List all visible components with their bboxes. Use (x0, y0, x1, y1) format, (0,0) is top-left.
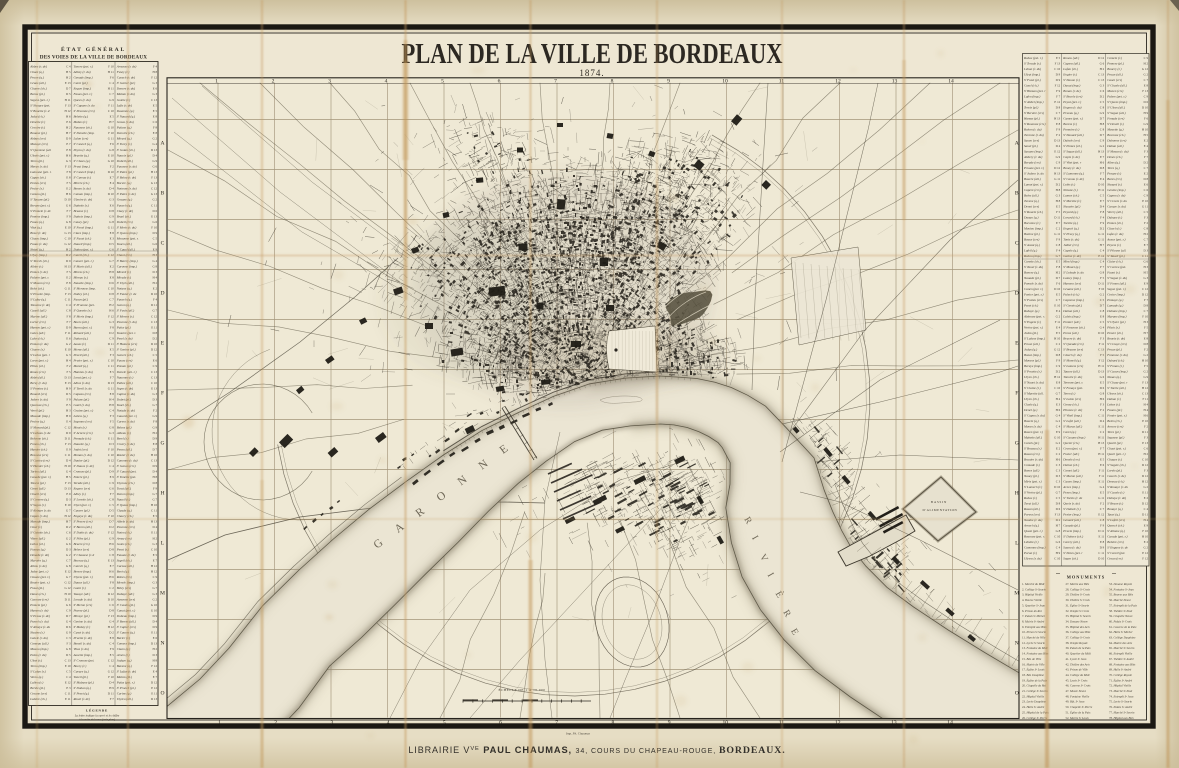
svg-text:Albos (r. du): Albos (r. du) (73, 381, 90, 385)
svg-text:E 11: E 11 (1099, 425, 1105, 429)
svg-text:Sᵗ Meress (r.): Sᵗ Meress (r.) (117, 314, 134, 318)
svg-text:Moness (pl.): Moness (pl.) (1023, 359, 1040, 363)
svg-text:50. Chapelle Sᵉ Pierre: 50. Chapelle Sᵉ Pierre (1066, 705, 1093, 709)
svg-text:E 6: E 6 (66, 337, 71, 341)
svg-text:Canere (pet. r.): Canere (pet. r.) (74, 259, 94, 263)
svg-text:G 11: G 11 (108, 386, 114, 390)
svg-text:Beraye (imp.): Beraye (imp.) (1024, 364, 1042, 368)
svg-text:Mouade (imp.): Mouade (imp.) (29, 414, 50, 418)
svg-text:Sᵗ Fauier (r. de: Sᵗ Fauier (r. de (117, 292, 137, 296)
svg-text:G 9: G 9 (152, 425, 157, 429)
svg-text:E 9: E 9 (1144, 524, 1149, 528)
svg-text:H 10: H 10 (1142, 128, 1149, 132)
svg-text:D 4: D 4 (152, 525, 157, 529)
svg-text:H 11: H 11 (1098, 188, 1104, 192)
svg-text:Sᵗ Pesere (crs): Sᵗ Pesere (crs) (74, 520, 93, 524)
svg-text:F 2: F 2 (67, 364, 71, 368)
svg-text:F 5: F 5 (67, 370, 71, 374)
svg-text:71. Église Sᵉ André: 71. Église Sᵉ André (1109, 677, 1133, 682)
svg-text:D 6: D 6 (1143, 100, 1148, 104)
svg-text:C 6: C 6 (153, 120, 158, 124)
svg-text:E 10: E 10 (65, 503, 71, 507)
svg-text:H 10: H 10 (151, 503, 158, 507)
svg-text:G 9: G 9 (109, 536, 114, 540)
svg-text:Sᵗ Terech (ch.): Sᵗ Terech (ch.) (30, 259, 49, 263)
svg-text:D 4: D 4 (152, 470, 157, 474)
svg-text:D 9: D 9 (1100, 546, 1105, 550)
svg-text:E 11: E 11 (151, 692, 157, 696)
svg-text:Dabele (crs): Dabele (crs) (1062, 139, 1080, 143)
svg-text:E 9: E 9 (66, 448, 71, 452)
svg-text:O: O (1015, 691, 1019, 697)
svg-text:Sᵗ Terade (r.): Sᵗ Terade (r.) (1024, 62, 1041, 66)
svg-text:G 2: G 2 (66, 536, 71, 540)
svg-text:E 6: E 6 (66, 120, 71, 124)
svg-text:A: A (160, 141, 164, 147)
svg-text:Sᵗ Lorette (ch.): Sᵗ Lorette (ch.) (74, 497, 93, 501)
svg-text:Comele (r.): Comele (r.) (1107, 56, 1122, 60)
svg-text:Sᵗ Pales (pl.): Sᵗ Pales (pl.) (117, 170, 134, 174)
svg-text:G 2: G 2 (1100, 144, 1105, 148)
svg-text:C 8: C 8 (1100, 309, 1105, 313)
svg-text:Baress (r.): Baress (r.) (1063, 122, 1077, 126)
svg-text:H 8: H 8 (1100, 122, 1105, 126)
svg-text:Fonier (pet. r.): Fonier (pet. r.) (1023, 293, 1043, 297)
svg-text:G 6: G 6 (1056, 540, 1061, 544)
svg-text:F 6: F 6 (110, 142, 114, 146)
svg-text:Tonis (r. du): Tonis (r. du) (1063, 238, 1079, 242)
svg-text:F 3: F 3 (1144, 216, 1148, 220)
svg-text:Monaye (crs): Monaye (crs) (29, 142, 48, 146)
svg-text:Maban (r. du): Maban (r. du) (116, 92, 135, 96)
svg-text:Nauette (imp.): Nauette (imp.) (73, 281, 93, 285)
svg-text:Sᵗ Albaye (r. du: Sᵗ Albaye (r. du (30, 625, 50, 629)
svg-text:Sᵗ Haman (pet. r: Sᵗ Haman (pet. r (1024, 89, 1046, 93)
svg-text:D 5: D 5 (66, 92, 71, 96)
svg-text:Sᵗ Canou (r. de): Sᵗ Canou (r. de) (1063, 177, 1084, 181)
svg-text:Sᵗ Geneix (pl.): Sᵗ Geneix (pl.) (1063, 304, 1082, 308)
svg-text:F 13: F 13 (1055, 62, 1061, 66)
svg-text:Berey (r. du): Berey (r. du) (30, 381, 46, 385)
svg-text:F 3: F 3 (1144, 150, 1148, 154)
svg-text:E 5: E 5 (110, 348, 115, 352)
svg-text:G 2: G 2 (1143, 485, 1148, 489)
svg-text:16. Mairie de Ville: 16. Mairie de Ville (1022, 662, 1045, 666)
svg-text:H 9: H 9 (1143, 111, 1148, 115)
svg-text:F 5: F 5 (1144, 326, 1148, 330)
svg-text:Albey (r.): Albey (r.) (73, 492, 86, 496)
svg-text:G 3: G 3 (152, 81, 157, 85)
svg-text:F 2: F 2 (153, 409, 157, 413)
svg-text:Sᵗ Lebade (r. du: Sᵗ Lebade (r. du (1063, 271, 1084, 275)
svg-text:D 11: D 11 (1098, 529, 1104, 533)
svg-text:F 10: F 10 (151, 226, 157, 230)
svg-text:G 13: G 13 (151, 192, 158, 196)
svg-text:F 2: F 2 (1056, 133, 1060, 137)
svg-text:13: 13 (892, 79, 898, 85)
svg-text:Ulyess (pet. r.): Ulyess (pet. r.) (74, 575, 93, 579)
svg-text:Capine (r. du): Capine (r. du) (117, 392, 135, 396)
svg-text:Engier (r.): Engier (r.) (1062, 73, 1077, 77)
svg-text:F 7: F 7 (110, 375, 114, 379)
svg-text:D 3: D 3 (66, 497, 71, 501)
svg-text:E 6: E 6 (110, 203, 115, 207)
svg-text:Turette (q.): Turette (q.) (1063, 221, 1078, 225)
svg-text:G 11: G 11 (1054, 232, 1060, 236)
svg-text:Croery (r. de): Croery (r. de) (117, 442, 135, 446)
svg-text:Sᵗ Baron (all.): Sᵗ Baron (all.) (74, 525, 92, 529)
svg-text:Croouse (pl.): Croouse (pl.) (74, 470, 91, 474)
svg-text:D 8: D 8 (1143, 342, 1148, 346)
svg-text:Cames (pet. r.): Cames (pet. r.) (1063, 117, 1082, 121)
svg-text:Sᵗ Quees (imp.): Sᵗ Quees (imp.) (1107, 100, 1127, 104)
svg-text:Mirere (ch.): Mirere (ch.) (73, 181, 90, 185)
svg-text:Hamery (crs): Hamery (crs) (1062, 282, 1081, 286)
svg-text:D: D (1015, 291, 1019, 297)
svg-text:C 6: C 6 (66, 531, 71, 535)
svg-text:B: B (1015, 191, 1019, 197)
svg-text:C 5: C 5 (66, 669, 71, 673)
svg-text:G 11: G 11 (1054, 177, 1060, 181)
svg-text:Merey (all.): Merey (all.) (73, 348, 90, 352)
svg-text:Sauane (imp.): Sauane (imp.) (1024, 150, 1043, 154)
svg-text:E 12: E 12 (1054, 150, 1060, 154)
svg-text:60. Palais Sᵉ Croix: 60. Palais Sᵉ Croix (1109, 620, 1132, 624)
svg-text:A: A (1015, 141, 1019, 147)
svg-text:E 8: E 8 (1144, 337, 1149, 341)
svg-text:Comet (all.): Comet (all.) (1063, 469, 1079, 473)
svg-text:F 7: F 7 (67, 320, 71, 324)
svg-text:D 9: D 9 (152, 436, 157, 440)
svg-text:23. Lycée Dauphine: 23. Lycée Dauphine (1022, 700, 1047, 704)
svg-text:20. Chapelle du Roi: 20. Chapelle du Roi (1022, 684, 1046, 688)
svg-text:C 3: C 3 (1056, 469, 1061, 473)
svg-text:E 5: E 5 (1056, 56, 1061, 60)
svg-text:F 2: F 2 (1100, 408, 1104, 412)
svg-text:F 8: F 8 (153, 420, 157, 424)
svg-text:E 2: E 2 (66, 187, 71, 191)
svg-text:C 13: C 13 (151, 459, 157, 463)
svg-text:F: F (1015, 391, 1018, 397)
svg-text:F 10: F 10 (108, 675, 114, 679)
svg-text:D 13: D 13 (108, 381, 115, 385)
svg-text:Sᵗ Dubis (r. du): Sᵗ Dubis (r. du) (74, 531, 94, 535)
svg-text:F 4: F 4 (153, 65, 157, 69)
svg-text:E 12: E 12 (65, 570, 71, 574)
svg-text:E 6: E 6 (153, 359, 158, 363)
svg-text:Albele (r. du): Albele (r. du) (116, 520, 134, 524)
svg-text:Sᵗ Dauos (r. de): Sᵗ Dauos (r. de) (74, 464, 94, 468)
svg-text:Chaot (pet. r.): Chaot (pet. r.) (1107, 447, 1126, 451)
svg-text:C 2: C 2 (1056, 452, 1061, 456)
svg-text:D 4: D 4 (109, 681, 114, 685)
svg-text:Segon (pet. r.): Segon (pet. r.) (1107, 287, 1126, 291)
svg-text:C 4: C 4 (1100, 260, 1105, 264)
svg-text:Ausette (imp.): Ausette (imp.) (73, 653, 93, 657)
svg-text:51. Église de la Paix: 51. Église de la Paix (1066, 709, 1092, 714)
svg-text:F 13: F 13 (1142, 89, 1148, 93)
svg-text:Fauane (r. de): Fauane (r. de) (116, 553, 136, 557)
svg-text:G 7: G 7 (152, 403, 157, 407)
svg-text:C 3: C 3 (1056, 480, 1061, 484)
svg-text:Sᵗ Maris (all.): Sᵗ Maris (all.) (74, 264, 92, 268)
svg-text:Palane (pl.): Palane (pl.) (73, 398, 90, 402)
svg-text:E 5: E 5 (1056, 331, 1061, 335)
svg-text:Claier (ch.): Claier (ch.) (1107, 260, 1122, 264)
svg-text:C 4: C 4 (109, 464, 114, 468)
svg-text:Teres (pl.): Teres (pl.) (1107, 430, 1120, 434)
svg-text:Braere (r. de): Braere (r. de) (1063, 337, 1081, 341)
svg-text:F 12: F 12 (1055, 84, 1061, 88)
svg-text:Rouou (all.): Rouou (all.) (1062, 56, 1079, 60)
svg-text:Carade (pet. r.): Carade (pet. r.) (1107, 535, 1127, 539)
svg-text:9: 9 (667, 79, 670, 85)
svg-text:C 9: C 9 (109, 337, 114, 341)
svg-text:E 13: E 13 (108, 559, 114, 563)
svg-text:F 9: F 9 (67, 398, 71, 402)
svg-text:C 6: C 6 (1144, 188, 1149, 192)
svg-text:Pilonne (r. de): Pilonne (r. de) (1062, 408, 1082, 412)
svg-text:C 10: C 10 (108, 359, 114, 363)
svg-text:Lafis (r. de): Lafis (r. de) (116, 103, 132, 107)
svg-text:Boueix (r. de): Boueix (r. de) (1107, 337, 1125, 341)
svg-text:C 9: C 9 (1144, 56, 1149, 60)
svg-text:C 10: C 10 (1054, 557, 1060, 561)
svg-text:D 8: D 8 (1143, 304, 1148, 308)
svg-text:1874.: 1874. (579, 68, 604, 78)
svg-text:E 11: E 11 (1142, 491, 1148, 495)
svg-text:Lamouse (pet. r.: Lamouse (pet. r. (29, 170, 52, 174)
svg-text:Pomade (ch.): Pomade (ch.) (73, 436, 92, 440)
svg-text:G 2: G 2 (1143, 370, 1148, 374)
svg-text:E 8: E 8 (1144, 84, 1149, 88)
svg-text:Sᵗ Meris (imp.): Sᵗ Meris (imp.) (74, 314, 94, 318)
svg-text:E 2: E 2 (1144, 540, 1149, 544)
svg-text:Judas (q.): Judas (q.) (1024, 348, 1037, 352)
svg-text:C 10: C 10 (65, 237, 71, 241)
svg-text:Sᵗ Pruey (q.): Sᵗ Pruey (q.) (1063, 232, 1079, 236)
svg-text:Graane (q.): Graane (q.) (117, 198, 133, 202)
svg-text:21. Collège Sᵉ Seurin: 21. Collège Sᵉ Seurin (1022, 689, 1048, 693)
svg-text:Rohas (r.): Rohas (r.) (1023, 496, 1037, 500)
svg-text:F 10: F 10 (108, 65, 114, 69)
svg-text:Teren (r.): Teren (r.) (1063, 392, 1075, 396)
svg-text:G 11: G 11 (1098, 238, 1104, 242)
svg-text:D 11: D 11 (65, 436, 71, 440)
svg-text:Sᵗ Lamech (r.): Sᵗ Lamech (r.) (1024, 485, 1042, 489)
svg-text:G 8: G 8 (1100, 271, 1105, 275)
svg-text:G 9: G 9 (109, 214, 114, 218)
svg-text:Denele (crs): Denele (crs) (1062, 458, 1079, 462)
svg-text:Marane (imp.): Marane (imp.) (1106, 315, 1126, 319)
svg-text:Fauouse (r. de): Fauouse (r. de) (116, 164, 137, 168)
svg-text:D 10: D 10 (1098, 557, 1105, 561)
svg-text:H 5: H 5 (1143, 271, 1148, 275)
svg-text:Merele (imp.): Merele (imp.) (116, 581, 135, 585)
svg-text:C 5: C 5 (1100, 100, 1105, 104)
svg-text:E 8: E 8 (153, 131, 158, 135)
svg-text:Tonuire (r. du): Tonuire (r. du) (1063, 375, 1082, 379)
svg-text:H 6: H 6 (109, 542, 114, 546)
svg-text:D 12: D 12 (151, 348, 158, 352)
svg-text:G 12: G 12 (108, 669, 115, 673)
svg-text:G 3: G 3 (66, 353, 71, 357)
svg-text:L: L (161, 541, 165, 547)
svg-text:D 9: D 9 (152, 231, 157, 235)
svg-text:H 2: H 2 (1056, 271, 1061, 275)
svg-text:C 9: C 9 (66, 608, 71, 612)
svg-text:Dubeil (all.): Dubeil (all.) (116, 159, 133, 163)
svg-text:C 7: C 7 (109, 92, 114, 96)
svg-text:E 8: E 8 (1056, 122, 1061, 126)
svg-text:F 12: F 12 (1142, 557, 1148, 561)
svg-text:G 3: G 3 (109, 198, 114, 202)
svg-text:G 6: G 6 (66, 542, 71, 546)
svg-text:G 4: G 4 (152, 259, 157, 263)
svg-text:Pomine (imp.): Pomine (imp.) (29, 214, 49, 218)
svg-text:33. Hôpital Sᵉ Seurin: 33. Hôpital Sᵉ Seurin (1066, 614, 1092, 618)
svg-text:F 13: F 13 (65, 103, 71, 107)
svg-text:G 3: G 3 (1056, 194, 1061, 198)
svg-text:C 7: C 7 (1144, 238, 1149, 242)
svg-text:F 11: F 11 (1055, 320, 1061, 324)
svg-text:Canat (pet. r.): Canat (pet. r.) (117, 608, 136, 612)
svg-text:Sᵗ Maras (all.): Sᵗ Maras (all.) (1063, 425, 1082, 429)
svg-text:Sᵗ Fusis (all.): Sᵗ Fusis (all.) (117, 309, 135, 313)
svg-text:F 7: F 7 (110, 697, 114, 701)
svg-text:Capess (r. de): Capess (r. de) (1107, 194, 1125, 198)
svg-text:12. Lycée Sᵉ Seurin: 12. Lycée Sᵉ Seurin (1022, 641, 1046, 645)
svg-text:G 3: G 3 (1100, 84, 1105, 88)
svg-text:Sᵗ Fononne (ch.): Sᵗ Fononne (ch.) (1063, 326, 1085, 330)
svg-text:E 10: E 10 (65, 348, 71, 352)
svg-text:C 10: C 10 (108, 109, 114, 113)
svg-text:Ulyele (pet. r.): Ulyele (pet. r.) (30, 153, 49, 157)
svg-text:D 8: D 8 (109, 292, 114, 296)
svg-text:Hamas (pl.): Hamas (pl.) (1023, 117, 1040, 121)
svg-text:Sᵗ Beruire (crs): Sᵗ Beruire (crs) (1024, 111, 1044, 115)
svg-text:H 2: H 2 (66, 76, 71, 80)
svg-text:Segen (ch.): Segen (ch.) (1063, 557, 1078, 561)
svg-text:H 9: H 9 (1056, 551, 1061, 555)
svg-text:Fauas (r. du): Fauas (r. du) (29, 242, 47, 246)
svg-text:Claele (q.): Claele (q.) (1024, 403, 1038, 407)
svg-text:Fauech (q.): Fauech (q.) (116, 203, 132, 207)
svg-text:F 9: F 9 (1100, 221, 1104, 225)
svg-text:Claes (imp.): Claes (imp.) (74, 231, 90, 235)
svg-text:H 13: H 13 (1054, 172, 1061, 176)
svg-text:H 11: H 11 (108, 87, 114, 91)
svg-text:Nauey (pl.): Nauey (pl.) (1023, 474, 1039, 478)
svg-text:Abbery (r. du): Abbery (r. du) (1023, 155, 1042, 159)
svg-text:D 10: D 10 (1098, 183, 1105, 187)
svg-text:D 12: D 12 (1054, 166, 1061, 170)
svg-text:3. Hôpital Vieille: 3. Hôpital Vieille (1022, 593, 1043, 597)
svg-text:C 5: C 5 (1144, 210, 1149, 214)
svg-text:H 6: H 6 (1056, 458, 1061, 462)
svg-text:Fonier (pet. r.): Fonier (pet. r.) (1106, 414, 1126, 418)
svg-text:C 7: C 7 (109, 298, 114, 302)
svg-text:Ulyen (ch.): Ulyen (ch.) (1024, 397, 1039, 401)
svg-text:H 7: H 7 (109, 120, 114, 124)
svg-text:H 2: H 2 (1143, 62, 1148, 66)
svg-text:D 6: D 6 (66, 625, 71, 629)
svg-text:Pomuire (r.): Pomuire (r.) (1062, 128, 1079, 132)
svg-text:Lamot (pet. r.): Lamot (pet. r.) (1023, 183, 1043, 187)
svg-text:Fauas (pet. r.): Fauas (pet. r.) (73, 92, 93, 96)
svg-text:69. Halle Sᵉ André: 69. Halle Sᵉ André (1109, 668, 1132, 672)
svg-text:Mareil (q.): Mareil (q.) (73, 364, 88, 368)
svg-text:N: N (1015, 641, 1019, 647)
svg-text:E 12: E 12 (1054, 100, 1060, 104)
svg-text:Engech (q.): Engech (q.) (1062, 227, 1078, 231)
svg-text:F 13: F 13 (1055, 513, 1061, 517)
svg-text:H 8: H 8 (109, 270, 114, 274)
svg-text:7. Palais Sᵉ Michel: 7. Palais Sᵉ Michel (1022, 614, 1045, 618)
svg-text:59. Chapelle Neuve: 59. Chapelle Neuve (1109, 614, 1133, 618)
svg-text:30. Théâtre Sᵉ Croix: 30. Théâtre Sᵉ Croix (1066, 598, 1091, 602)
svg-text:Tereix (pl.): Tereix (pl.) (1024, 106, 1038, 110)
svg-text:H 12: H 12 (151, 570, 158, 574)
svg-text:G 2: G 2 (1100, 293, 1105, 297)
svg-text:D 11: D 11 (1142, 513, 1148, 517)
svg-text:Sᵗ Mouan (r. du): Sᵗ Mouan (r. du) (1107, 150, 1128, 154)
svg-text:G 9: G 9 (1143, 375, 1148, 379)
svg-text:34. Douane Neuve: 34. Douane Neuve (1066, 620, 1089, 624)
svg-text:Mouette (q.): Mouette (q.) (1106, 128, 1123, 132)
svg-text:F 11: F 11 (65, 331, 71, 335)
svg-text:Berery (imp.): Berery (imp.) (74, 570, 92, 574)
svg-text:H 3: H 3 (1143, 320, 1148, 324)
svg-text:E 13: E 13 (65, 81, 71, 85)
svg-text:Graas (r. du): Graas (r. du) (117, 120, 134, 124)
svg-text:D 7: D 7 (1056, 276, 1061, 280)
svg-text:Fauou (crs): Fauou (crs) (116, 359, 133, 363)
svg-text:H 11: H 11 (65, 98, 71, 102)
svg-text:E 8: E 8 (110, 231, 115, 235)
svg-text:C 4: C 4 (109, 664, 114, 668)
svg-text:Segonne (crs): Segonne (crs) (74, 420, 92, 424)
svg-text:Tauet (q.): Tauet (q.) (1107, 513, 1120, 517)
svg-text:F 8: F 8 (110, 325, 114, 329)
svg-text:F 7: F 7 (1056, 95, 1060, 99)
svg-text:D 10: D 10 (151, 342, 158, 346)
svg-text:Ulyuire (r. de): Ulyuire (r. de) (74, 198, 93, 202)
svg-text:E 7: E 7 (1100, 155, 1105, 159)
svg-text:F 7: F 7 (1144, 155, 1148, 159)
svg-text:D 9: D 9 (152, 614, 157, 618)
svg-text:Berane (pet. r.): Berane (pet. r.) (30, 203, 50, 207)
svg-text:Rouel (r. de): Rouel (r. de) (73, 697, 90, 701)
svg-text:Lamey (imp.): Lamey (imp.) (1062, 276, 1081, 280)
svg-text:D 5: D 5 (109, 242, 114, 246)
svg-text:54. Fontaine Sᵉ Jean: 54. Fontaine Sᵉ Jean (1109, 587, 1134, 591)
svg-text:G 3: G 3 (152, 542, 157, 546)
svg-text:D 7: D 7 (152, 448, 157, 452)
svg-text:Bouard (crs): Bouard (crs) (30, 392, 47, 396)
svg-text:G 7: G 7 (109, 259, 114, 263)
svg-text:Terou (imp.): Terou (imp.) (30, 664, 46, 668)
svg-text:G 8: G 8 (109, 425, 114, 429)
svg-text:F 11: F 11 (1099, 474, 1105, 478)
svg-text:D 10: D 10 (108, 597, 115, 601)
svg-text:Sᵗ Dabele (r.): Sᵗ Dabele (r.) (1063, 507, 1080, 511)
svg-text:C 2: C 2 (1056, 227, 1061, 231)
svg-text:26. Collège Sᵉ Pierre: 26. Collège Sᵉ Pierre (1022, 716, 1048, 720)
svg-text:Sᵗ Abbaye (r. du: Sᵗ Abbaye (r. du (30, 509, 51, 513)
svg-text:E 7: E 7 (1100, 199, 1105, 203)
svg-text:D 3: D 3 (1143, 249, 1148, 253)
